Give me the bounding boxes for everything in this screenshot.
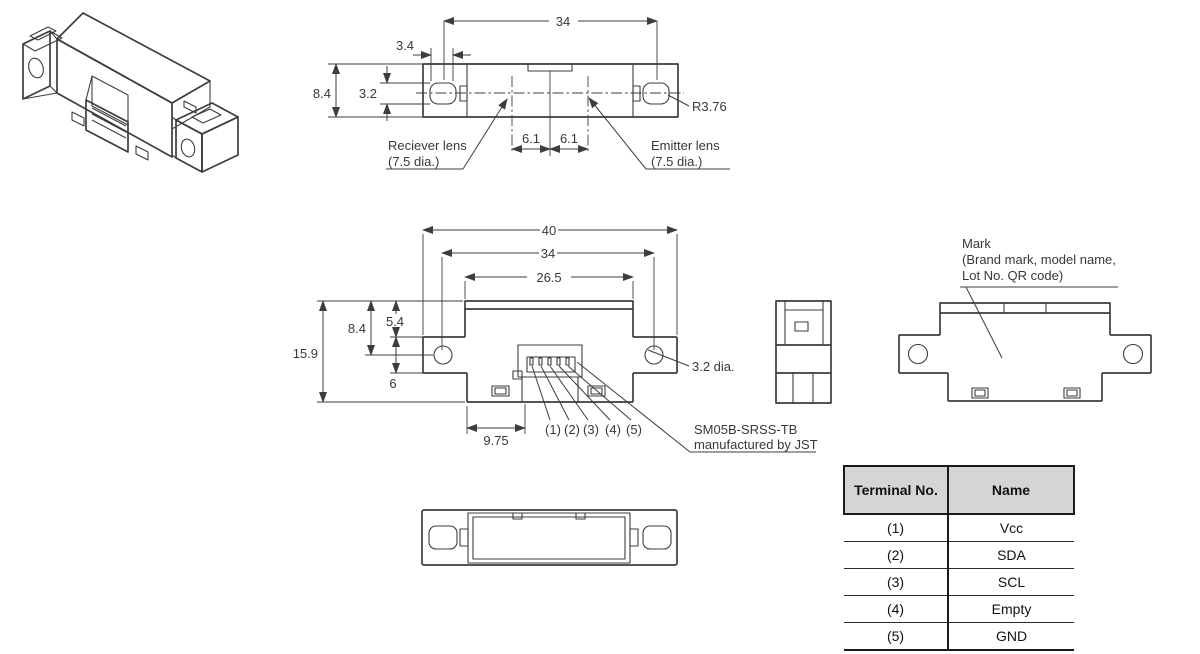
table-row: (3) SCL — [844, 569, 1074, 596]
terminal-no-cell: (2) — [844, 542, 948, 569]
front-dim-9-75: 9.75 — [467, 404, 525, 448]
hole-dia-callout: 3.2 dia. — [648, 350, 735, 374]
front-dim-15-9-label: 15.9 — [293, 346, 318, 361]
table-row: (1) Vcc — [844, 514, 1074, 542]
table-row: (2) SDA — [844, 542, 1074, 569]
terminal-name-cell: SCL — [948, 569, 1074, 596]
front-dim-34-label: 34 — [541, 246, 555, 261]
terminal-no-cell: (3) — [844, 569, 948, 596]
terminal-no-cell: (5) — [844, 623, 948, 651]
terminal-name-cell: Empty — [948, 596, 1074, 623]
table-row: (5) GND — [844, 623, 1074, 651]
connector-note-line1: SM05B-SRSS-TB — [694, 422, 797, 437]
terminal-name-cell: Vcc — [948, 514, 1074, 542]
front-connector — [513, 345, 582, 402]
dimension-drawing-page: 34 3.4 8.4 3.2 6.1 — [0, 0, 1200, 654]
table-row: (4) Empty — [844, 596, 1074, 623]
terminal-table-col-name: Name — [948, 466, 1074, 514]
terminal-no-cell: (4) — [844, 596, 948, 623]
top-view: 34 3.4 8.4 3.2 6.1 — [313, 14, 730, 169]
top-dim-6-1-left-label: 6.1 — [522, 131, 540, 146]
top-dim-3-2: 3.2 — [359, 66, 430, 121]
pin-4-label: (4) — [605, 422, 621, 437]
pin-3-label: (3) — [583, 422, 599, 437]
front-dim-34: 34 — [442, 246, 654, 350]
top-dim-34: 34 — [444, 14, 657, 80]
connector-note: SM05B-SRSS-TB manufactured by JST — [577, 362, 818, 452]
side-view — [776, 301, 831, 403]
terminal-table-header-row: Terminal No. Name — [844, 466, 1074, 514]
mark-note-line2: (Brand mark, model name, — [962, 252, 1116, 267]
mark-note-line1: Mark — [962, 236, 991, 251]
hole-dia-label: 3.2 dia. — [692, 359, 735, 374]
terminal-name-cell: SDA — [948, 542, 1074, 569]
terminal-table: Terminal No. Name (1) Vcc (2) SDA (3) SC… — [843, 465, 1075, 651]
pin-1-label: (1) — [545, 422, 561, 437]
front-dim-40-label: 40 — [542, 223, 556, 238]
corner-radius-label: R3.76 — [692, 99, 727, 114]
top-dim-3-4-label: 3.4 — [396, 38, 414, 53]
top-dim-3-4: 3.4 — [396, 38, 471, 81]
bottom-view — [422, 510, 677, 565]
receiver-lens-label-line1: Reciever lens — [388, 138, 467, 153]
terminal-table-col-terminal: Terminal No. — [844, 466, 948, 514]
front-dim-8-4-label: 8.4 — [348, 321, 366, 336]
terminal-name-cell: GND — [948, 623, 1074, 651]
pin-2-label: (2) — [564, 422, 580, 437]
connector-note-line2: manufactured by JST — [694, 437, 818, 452]
front-view: 40 34 26.5 15.9 8.4 — [293, 223, 818, 452]
pin-5-label: (5) — [626, 422, 642, 437]
mark-note-line3: Lot No. QR code) — [962, 268, 1063, 283]
rear-view: Mark (Brand mark, model name, Lot No. QR… — [899, 236, 1151, 401]
front-dim-26-5: 26.5 — [465, 270, 633, 299]
mark-note: Mark (Brand mark, model name, Lot No. QR… — [960, 236, 1118, 358]
emitter-lens-label-line2: (7.5 dia.) — [651, 154, 702, 169]
top-dim-6-1-right-label: 6.1 — [560, 131, 578, 146]
front-left-dims: 15.9 8.4 5.4 6 — [293, 301, 465, 402]
top-dim-8-4-label: 8.4 — [313, 86, 331, 101]
terminal-no-cell: (1) — [844, 514, 948, 542]
emitter-lens-label-line1: Emitter lens — [651, 138, 720, 153]
front-dim-9-75-label: 9.75 — [483, 433, 508, 448]
corner-radius-callout: R3.76 — [668, 95, 727, 114]
front-dim-26-5-label: 26.5 — [536, 270, 561, 285]
top-dim-3-2-label: 3.2 — [359, 86, 377, 101]
front-dim-5-4-label: 5.4 — [386, 314, 404, 329]
front-dim-6-label: 6 — [389, 376, 396, 391]
receiver-lens-callout: Reciever lens (7.5 dia.) — [386, 99, 507, 169]
top-dim-34-label: 34 — [556, 14, 570, 29]
isometric-view — [23, 13, 238, 172]
receiver-lens-label-line2: (7.5 dia.) — [388, 154, 439, 169]
